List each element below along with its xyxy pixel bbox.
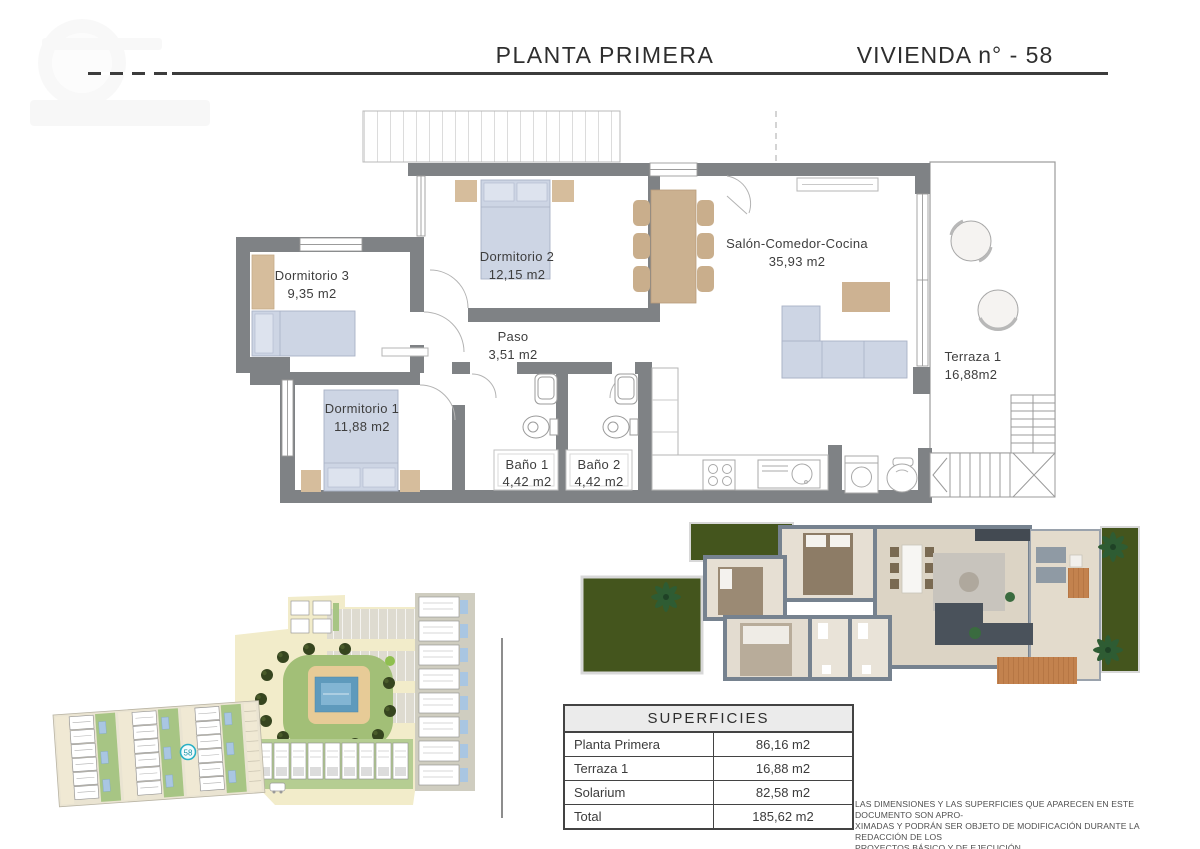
disclaimer-line: PROYECTOS BÁSICO Y DE EJECUCIÓN [855, 843, 1189, 849]
table-row: Planta Primera 86,16 m2 [564, 732, 853, 757]
table-row: Terraza 1 16,88 m2 [564, 757, 853, 781]
wardrobe-symbol [252, 255, 274, 309]
house-column-right [415, 593, 475, 791]
surfaces-table: SUPERFICIES Planta Primera 86,16 m2 Terr… [563, 704, 854, 830]
dining-set-render [890, 545, 934, 593]
section-divider [501, 638, 503, 818]
row-label: Terraza 1 [564, 757, 714, 781]
disclaimer-line: LAS DIMENSIONES Y LAS SUPERFICIES QUE AP… [855, 799, 1189, 821]
room-area: 16,88m2 [945, 367, 998, 382]
dining-table-symbol [633, 190, 714, 303]
floor-plan: Dormitorio 3 9,35 m2 Dormitorio 2 12,15 … [225, 95, 1115, 525]
room-area: 35,93 m2 [769, 254, 826, 269]
header-rule-dashed [88, 72, 172, 75]
kitchen-counter-render [975, 529, 1030, 541]
site-plan: 58 [45, 593, 485, 845]
sink-symbol [535, 374, 557, 404]
room-area: 9,35 m2 [287, 286, 336, 301]
room-label: Paso [498, 329, 529, 344]
garden-left [582, 577, 702, 673]
nightstand-symbol [455, 180, 477, 202]
page-title: PLANTA PRIMERA [430, 42, 780, 69]
townhouse-strip [53, 701, 265, 807]
unit-number: VIVIENDA n° - 58 [790, 42, 1120, 69]
sofa-symbol [782, 306, 907, 378]
furniture-salon [633, 190, 907, 378]
room-area: 3,51 m2 [488, 347, 537, 362]
nightstand-symbol [301, 470, 321, 492]
row-label: Total [564, 805, 714, 830]
header-rule [172, 72, 1108, 75]
row-label: Solarium [564, 781, 714, 805]
toilet-symbol [523, 416, 558, 438]
terrace-chair-symbol [951, 221, 991, 261]
room-area: 4,42 m2 [574, 474, 623, 489]
house-row-bottom [253, 739, 413, 789]
nightstand-symbol [400, 470, 420, 492]
table-row: Total 185,62 m2 [564, 805, 853, 830]
room-label: Baño 2 [577, 457, 620, 472]
plan-document-page: PLANTA PRIMERA VIVIENDA n° - 58 [0, 0, 1200, 849]
row-value: 82,58 m2 [714, 781, 854, 805]
room-area: 11,88 m2 [334, 419, 390, 434]
room-area: 4,42 m2 [502, 474, 551, 489]
unit-marker: 58 [181, 745, 196, 760]
room-label: Dormitorio 3 [275, 268, 349, 283]
palm-tree [1093, 635, 1123, 665]
stove-symbol [703, 460, 735, 490]
render-3d [578, 505, 1200, 700]
room-label: Baño 1 [505, 457, 548, 472]
toilet-symbol [603, 416, 638, 438]
palm-tree [1098, 532, 1128, 562]
bed-symbol [481, 180, 550, 279]
row-label: Planta Primera [564, 732, 714, 757]
row-value: 185,62 m2 [714, 805, 854, 830]
table-row: Solarium 82,58 m2 [564, 781, 853, 805]
disclaimer-line: XIMADAS Y PODRÁN SER OBJETO DE MODIFICAC… [855, 821, 1189, 843]
rug-symbol [842, 282, 890, 312]
room-label: Salón-Comedor-Cocina [726, 236, 868, 251]
bed-symbol [252, 311, 355, 356]
sink-symbol [615, 374, 637, 404]
pool [315, 677, 358, 712]
stairs-band [363, 111, 776, 163]
sink-symbol [758, 460, 820, 488]
room-label: Terraza 1 [945, 349, 1002, 364]
furniture-dormitorio-2 [455, 180, 574, 279]
nightstand-symbol [552, 180, 574, 202]
terrace-chair-symbol [978, 290, 1018, 330]
palm-tree [651, 582, 681, 612]
unit-marker-label: 58 [184, 749, 193, 758]
row-value: 86,16 m2 [714, 732, 854, 757]
room-area: 12,15 m2 [489, 267, 546, 282]
disclaimer-text: LAS DIMENSIONES Y LAS SUPERFICIES QUE AP… [855, 799, 1189, 849]
room-label: Dormitorio 1 [325, 401, 399, 416]
toilet-symbol [887, 458, 917, 492]
row-value: 16,88 m2 [714, 757, 854, 781]
washer-symbol [845, 456, 878, 493]
room-label: Dormitorio 2 [480, 249, 554, 264]
table-title: SUPERFICIES [564, 705, 853, 732]
